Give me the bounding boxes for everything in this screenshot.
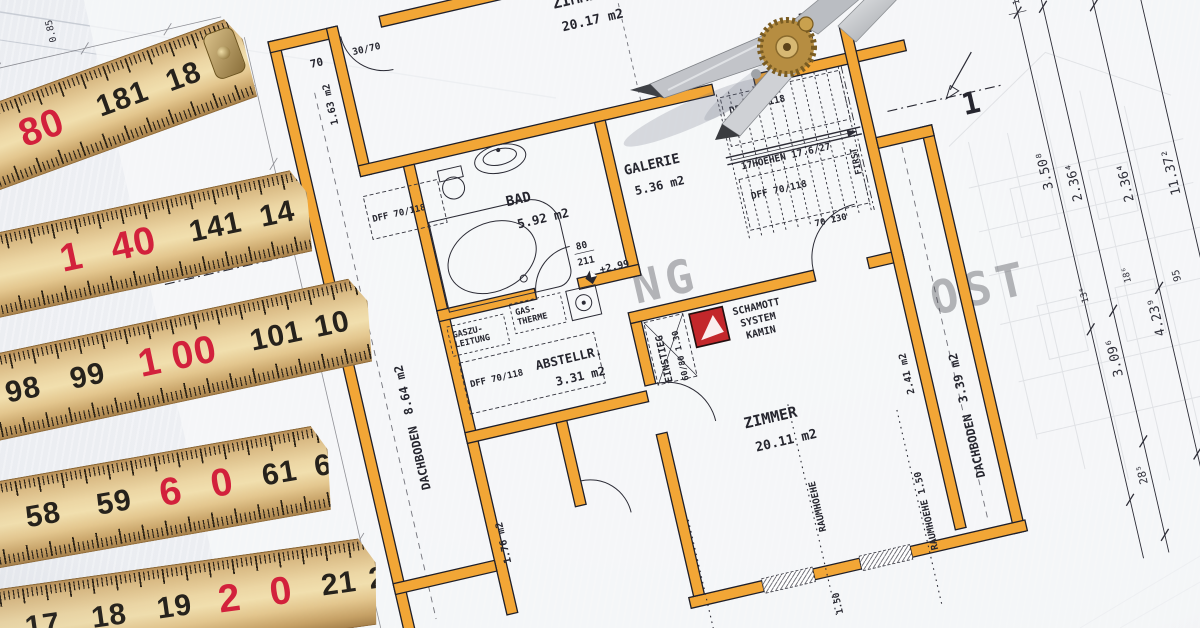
- ruler-number: 58: [23, 496, 64, 536]
- compass-joint: [751, 69, 761, 79]
- ruler-number: 10: [311, 304, 353, 345]
- ruler-number: 101: [247, 314, 306, 358]
- ruler-number: 61: [259, 454, 300, 494]
- dim-aux: 0.85: [44, 19, 60, 44]
- ruler-number: 18: [161, 55, 206, 99]
- ruler-number: 40: [107, 218, 161, 270]
- ruler-number: 141: [186, 205, 245, 249]
- ruler-number: 6: [156, 469, 186, 516]
- blueprint-photo: NG OST 0.85 1: [0, 0, 1200, 628]
- ruler-number: 1: [134, 339, 165, 387]
- ruler-number: 17: [23, 606, 63, 628]
- ruler-number: 80: [13, 100, 71, 157]
- ruler-number: 0: [207, 460, 237, 507]
- chimney: [689, 307, 730, 348]
- ruler-number: 98: [2, 370, 44, 411]
- ruler-number: 0: [267, 569, 296, 616]
- ruler-number: 59: [94, 483, 135, 523]
- ruler-number: 14: [257, 194, 299, 235]
- ruler-number: 18: [89, 597, 129, 628]
- ruler-number: 99: [67, 356, 109, 397]
- ruler-number: 00: [168, 327, 222, 379]
- compass-screw: [799, 17, 813, 31]
- ruler-number: 19: [155, 588, 195, 627]
- ruler-number: 2: [215, 576, 244, 623]
- ruler-number: 181: [92, 74, 153, 124]
- ruler-number: 1: [56, 234, 87, 282]
- ruler-number: 21: [319, 565, 359, 604]
